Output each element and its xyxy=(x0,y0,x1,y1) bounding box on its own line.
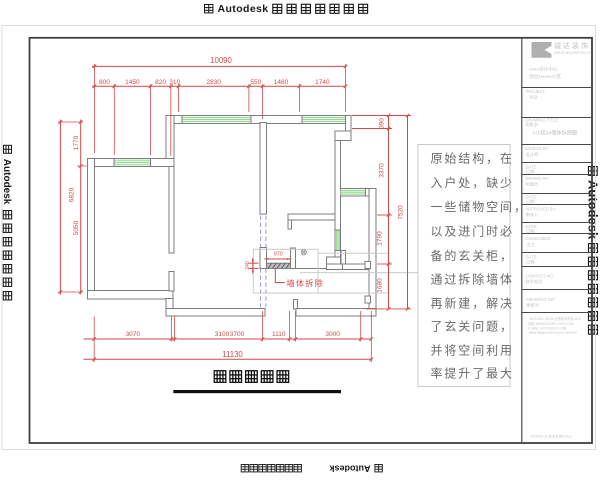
svg-text:Autodesk: Autodesk xyxy=(329,463,371,473)
svg-text:DESIGN BY:: DESIGN BY: xyxy=(526,146,550,151)
svg-text:CONSUMER:: CONSUMER: xyxy=(526,236,552,241)
svg-text:7520: 7520 xyxy=(398,205,405,220)
svg-text:1480: 1480 xyxy=(274,79,289,86)
svg-text:PROJECT:: PROJECT: xyxy=(526,89,546,94)
svg-text:10090: 10090 xyxy=(210,56,232,65)
svg-text:网站 WWW.XXXXX-XXXX.COM: 网站 WWW.XXXXX-XXXX.COM xyxy=(529,321,575,326)
svg-text:3370: 3370 xyxy=(379,163,386,178)
svg-text:240: 240 xyxy=(245,261,251,270)
svg-text:Autodesk: Autodesk xyxy=(218,3,269,15)
svg-text:x小区xx墙体拆除图: x小区xx墙体拆除图 xyxy=(533,129,577,137)
svg-text:1110: 1110 xyxy=(272,331,286,338)
svg-text:了玄关问题，: 了玄关问题， xyxy=(431,318,514,333)
svg-text:550: 550 xyxy=(250,79,261,86)
svg-text:1680: 1680 xyxy=(376,278,383,293)
svg-text:入户处，缺少: 入户处，缺少 xyxy=(431,175,514,190)
svg-text:XINDA DECORATION CO.: XINDA DECORATION CO. xyxy=(554,51,592,55)
svg-text:1740: 1740 xyxy=(315,79,330,86)
svg-text:1450: 1450 xyxy=(125,79,140,86)
svg-text:xxxx设计中心: xxxx设计中心 xyxy=(529,66,558,73)
svg-text:2830: 2830 xyxy=(206,79,221,86)
svg-text:DRAWING NO:: DRAWING NO: xyxy=(527,297,556,302)
svg-text:绘图员:: 绘图员: xyxy=(526,181,540,188)
svg-text:图纸号:: 图纸号: xyxy=(527,302,541,309)
svg-text:以及进门时必: 以及进门时必 xyxy=(431,224,514,239)
svg-text:原始结构，在: 原始结构，在 xyxy=(431,151,514,166)
svg-text:800: 800 xyxy=(99,79,110,86)
svg-text:6820: 6820 xyxy=(69,187,76,202)
svg-text:CONTACT NO:: CONTACT NO: xyxy=(526,274,554,279)
svg-text:1790: 1790 xyxy=(376,231,383,246)
svg-text:11130: 11130 xyxy=(222,350,243,359)
svg-text:业主:: 业主: xyxy=(527,241,537,247)
svg-text:审核人:: 审核人: xyxy=(526,211,540,218)
svg-text:WEB WWW.XXXXXXX.COM/XXX: WEB WWW.XXXXXXX.COM/XXX xyxy=(529,331,578,335)
svg-text:地址Dxxxx小区: 地址Dxxxx小区 xyxy=(529,73,561,80)
svg-text:3000: 3000 xyxy=(325,331,340,338)
svg-text:5050: 5050 xyxy=(73,220,80,235)
svg-text:Autodesk: Autodesk xyxy=(1,159,12,205)
svg-text:再新建，解决: 再新建，解决 xyxy=(431,296,514,311)
svg-text:DRAWN BY:: DRAWN BY: xyxy=(526,176,549,181)
svg-text:诚达装饰: 诚达装饰 xyxy=(554,41,590,50)
svg-text:图纸名:: 图纸名: xyxy=(526,121,540,128)
svg-text:3100: 3100 xyxy=(215,331,230,338)
svg-text:3070: 3070 xyxy=(126,331,141,338)
svg-text:设计师:: 设计师: xyxy=(526,151,540,158)
svg-text:2023-01-01 技术支持xxxxxx: 2023-01-01 技术支持xxxxxx xyxy=(530,434,572,439)
svg-text:率提升了最大: 率提升了最大 xyxy=(431,366,514,381)
svg-text:E-MAIL XXXXX@XX.COM: E-MAIL XXXXX@XX.COM xyxy=(529,327,567,331)
svg-text:970: 970 xyxy=(274,251,283,257)
svg-text:390: 390 xyxy=(379,118,386,129)
svg-text:APPROVED BY:: APPROVED BY: xyxy=(526,207,557,212)
svg-text:备的玄关柜，: 备的玄关柜， xyxy=(431,248,514,263)
svg-text:一些储物空间，: 一些储物空间， xyxy=(431,199,528,214)
svg-text:3700: 3700 xyxy=(230,331,245,338)
svg-text:并将空间利用: 并将空间利用 xyxy=(431,344,514,358)
svg-text:通过拆除墙体: 通过拆除墙体 xyxy=(431,271,514,286)
svg-text:+86 10000-00000(全国服务热线 021): +86 10000-00000(全国服务热线 021) xyxy=(529,316,582,321)
svg-text:1770: 1770 xyxy=(73,135,80,150)
svg-text:联系电话:: 联系电话: xyxy=(526,278,544,285)
svg-text:820: 820 xyxy=(155,79,166,86)
svg-text:墙体拆除: 墙体拆除 xyxy=(287,278,325,288)
